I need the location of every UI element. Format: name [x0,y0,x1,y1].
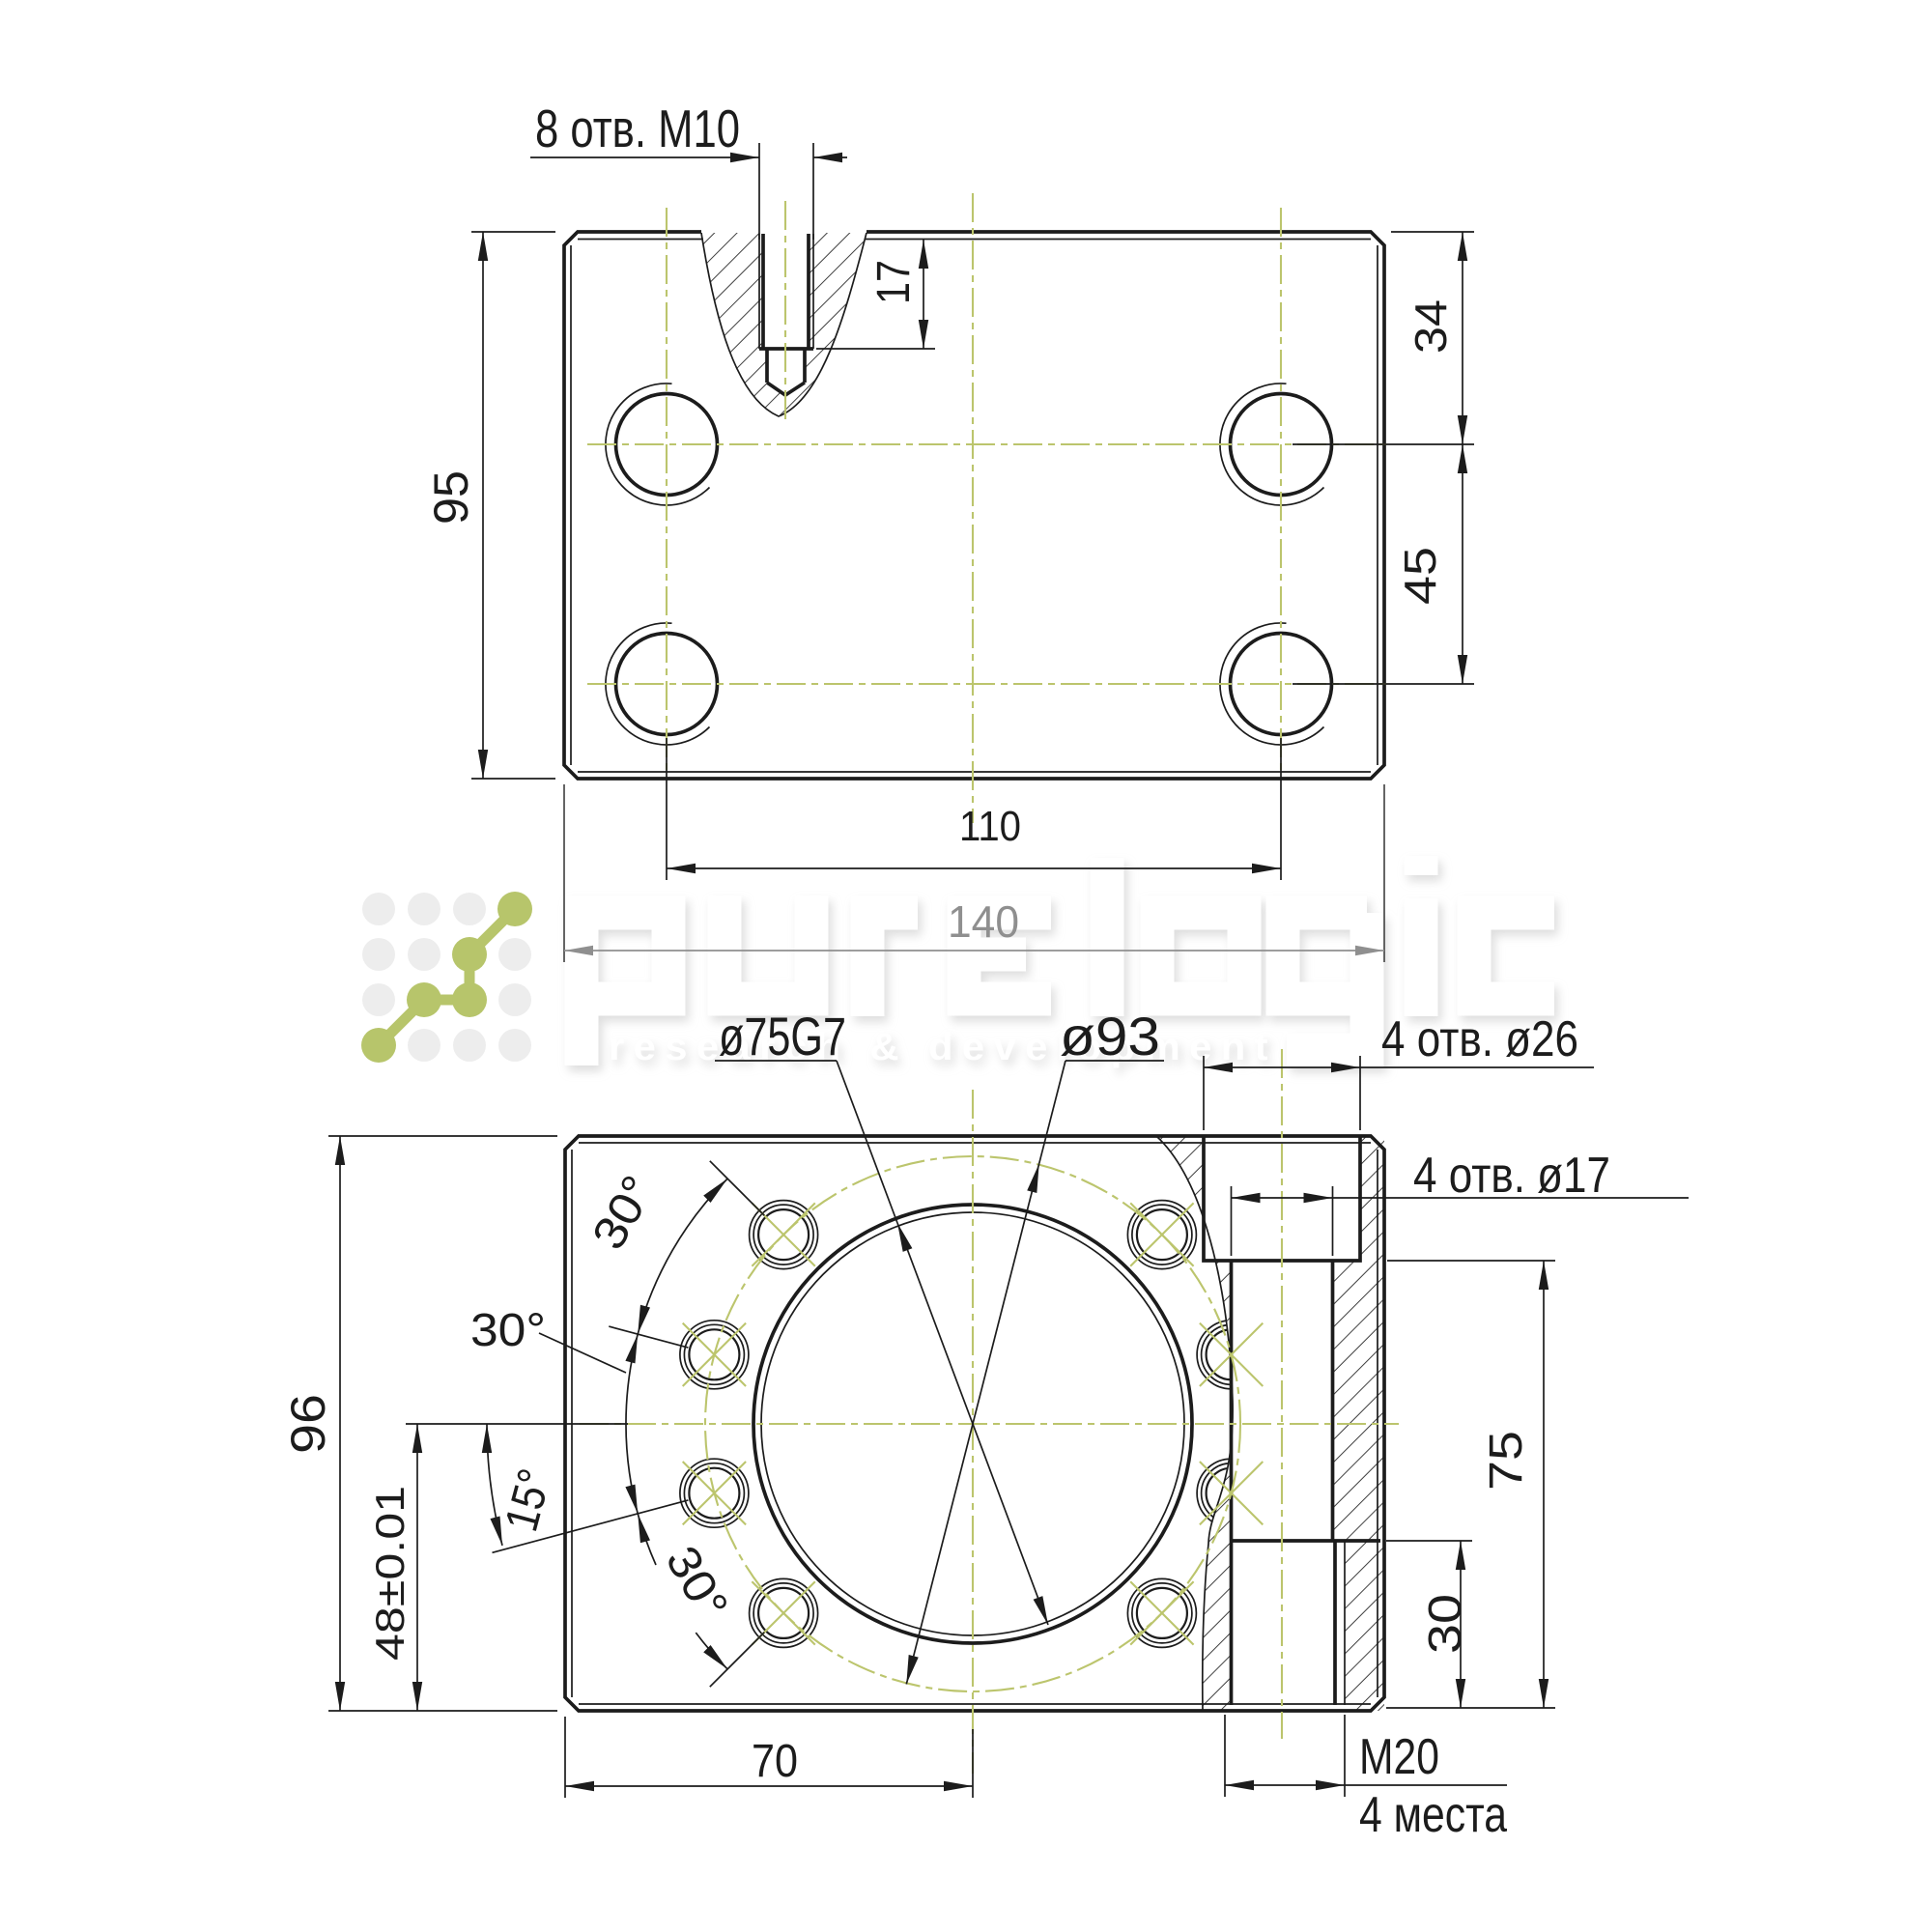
svg-text:4 отв. ø26: 4 отв. ø26 [1381,1011,1578,1067]
svg-text:110: 110 [959,803,1021,850]
svg-text:М20: М20 [1359,1729,1439,1785]
svg-text:8 отв. М10: 8 отв. М10 [535,99,740,158]
svg-text:17: 17 [868,260,920,304]
svg-text:4 места: 4 места [1359,1787,1507,1843]
svg-text:research & development: research & development [609,1026,1277,1068]
svg-text:140: 140 [948,896,1019,947]
svg-text:ø75G7: ø75G7 [719,1006,846,1066]
svg-text:30: 30 [1420,1594,1471,1654]
svg-text:75: 75 [1481,1431,1532,1491]
svg-text:4 отв. ø17: 4 отв. ø17 [1413,1148,1610,1204]
svg-text:95: 95 [424,470,478,525]
svg-text:96: 96 [281,1394,335,1454]
svg-text:48±0.01: 48±0.01 [367,1486,412,1661]
svg-text:ø93: ø93 [1060,1006,1160,1066]
svg-text:30°: 30° [470,1305,546,1356]
svg-text:34: 34 [1406,299,1456,354]
svg-text:45: 45 [1395,547,1445,605]
svg-text:70: 70 [752,1736,798,1787]
